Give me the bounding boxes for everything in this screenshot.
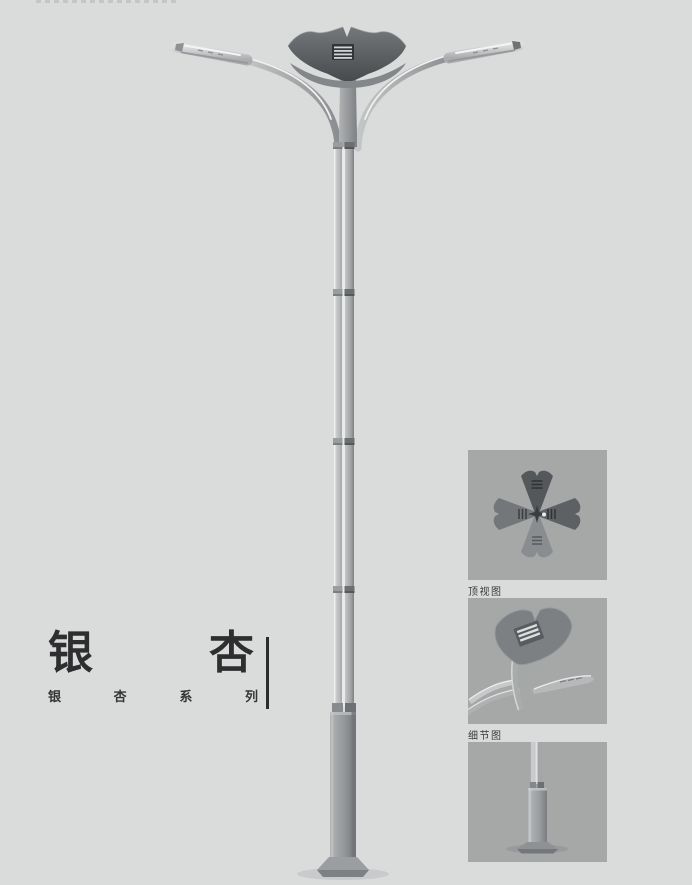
base-plate: [297, 857, 389, 880]
subtitle-char: 杏: [114, 686, 127, 705]
detail-view-drawing: [468, 598, 607, 724]
title-divider-bar: [266, 637, 269, 709]
base-view-figure: [468, 742, 607, 862]
right-lamp-head: [449, 41, 521, 61]
subtitle-char: 系: [179, 686, 192, 705]
base-column: [330, 712, 356, 859]
subtitle-char: 银: [48, 686, 61, 705]
crown-vent-panel: [332, 44, 354, 60]
detail-view-label: 细节图: [468, 727, 503, 742]
top-view-label: 顶视图: [468, 583, 503, 598]
pole: [334, 147, 355, 707]
series-subtitle: 银 杏 系 列: [48, 686, 258, 705]
top-view-drawing: [468, 450, 607, 580]
title-char: 银: [48, 628, 93, 678]
base-view-drawing: [468, 742, 607, 862]
top-view-figure: [468, 450, 607, 580]
page-title: 银 杏: [48, 628, 254, 678]
left-lamp-head: [175, 43, 247, 63]
subtitle-char: 列: [245, 686, 258, 705]
detail-view-figure: [468, 598, 607, 724]
title-char: 杏: [209, 628, 254, 678]
catalog-page: 银 杏 银 杏 系 列: [0, 0, 692, 885]
title-block: 银 杏 银 杏 系 列: [48, 628, 270, 705]
